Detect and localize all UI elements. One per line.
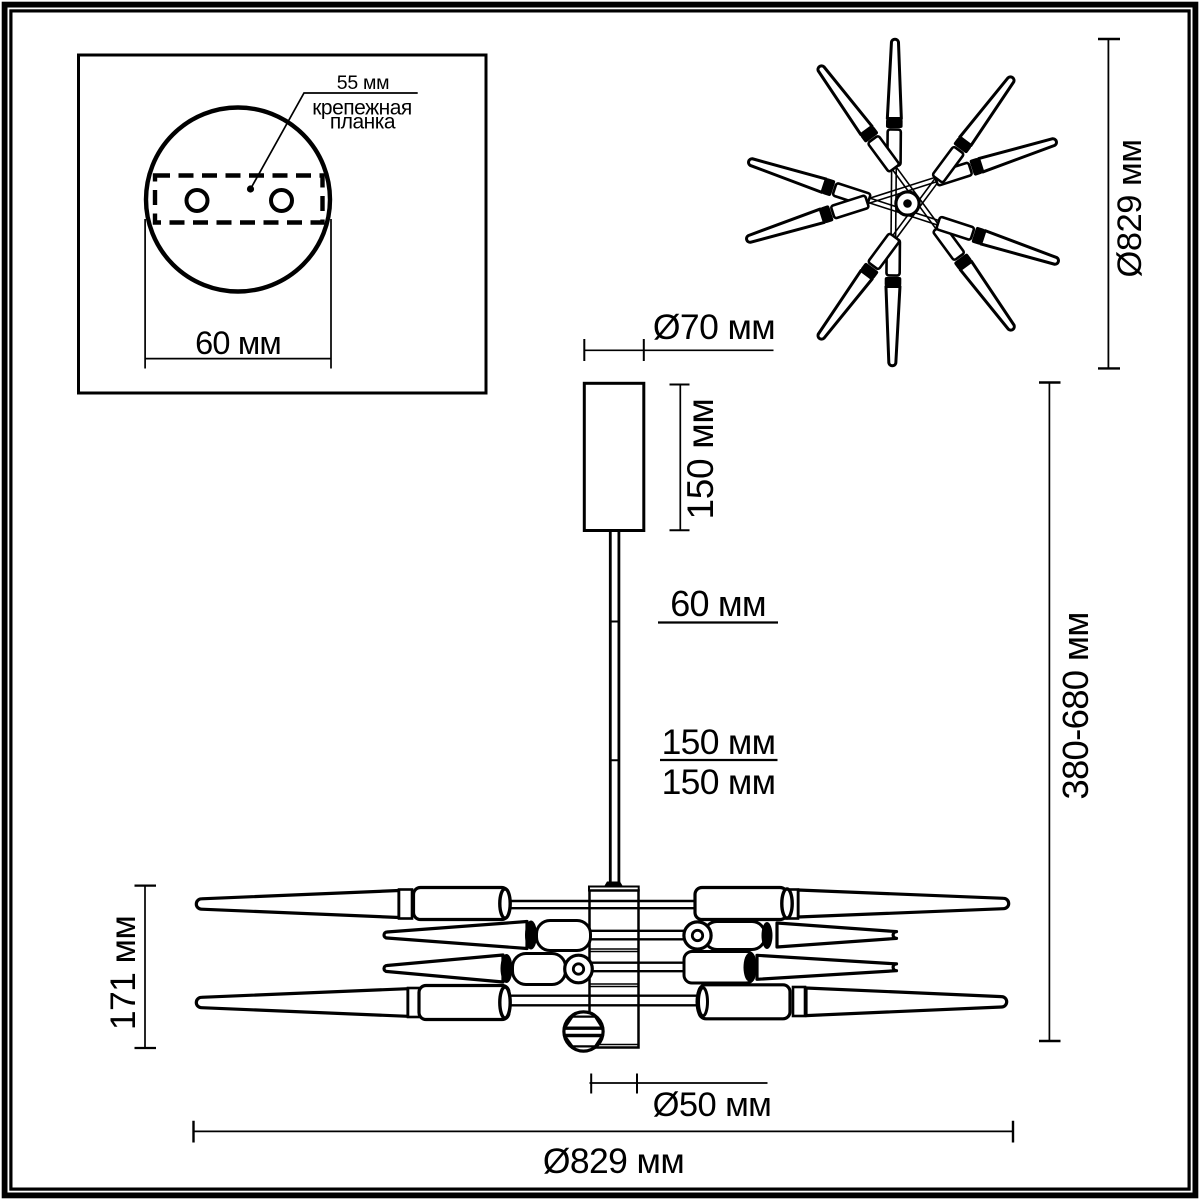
svg-text:55 мм: 55 мм [337, 72, 389, 94]
svg-text:150 мм: 150 мм [662, 722, 776, 762]
svg-text:планка: планка [330, 111, 396, 134]
svg-text:60 мм: 60 мм [195, 325, 281, 361]
svg-text:150 мм: 150 мм [680, 398, 721, 519]
svg-text:Ø70 мм: Ø70 мм [653, 307, 775, 347]
svg-text:150 мм: 150 мм [662, 762, 776, 802]
svg-text:Ø50 мм: Ø50 мм [653, 1086, 772, 1124]
svg-text:171 мм: 171 мм [103, 916, 143, 1030]
svg-text:Ø829 мм: Ø829 мм [543, 1141, 684, 1181]
svg-text:Ø829 мм: Ø829 мм [1111, 140, 1149, 278]
svg-text:380-680 мм: 380-680 мм [1055, 612, 1096, 799]
svg-text:60 мм: 60 мм [670, 583, 766, 624]
